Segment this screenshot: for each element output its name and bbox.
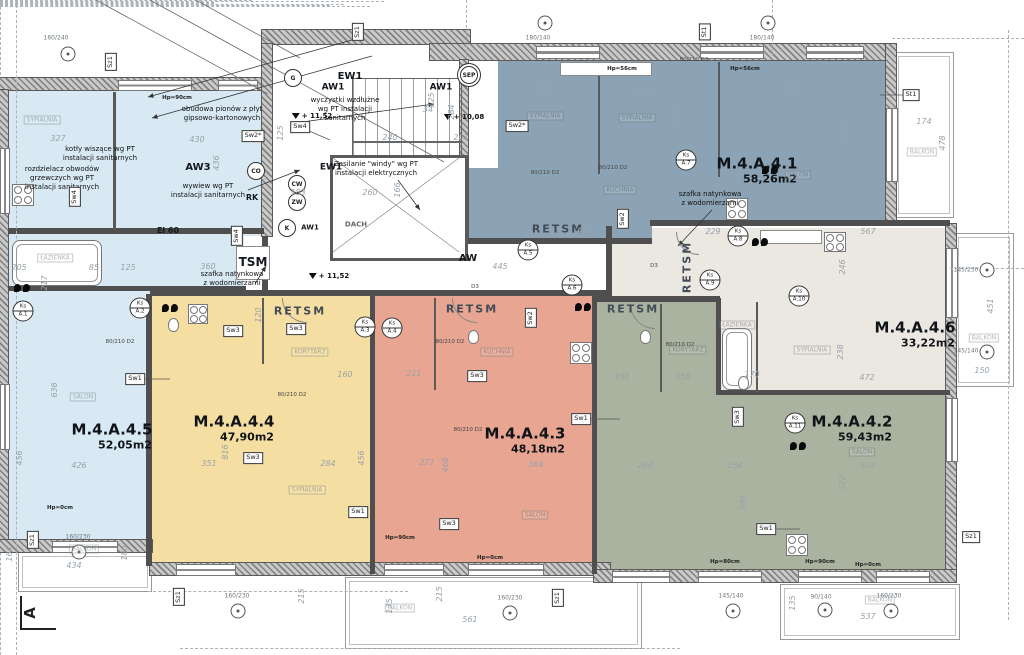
dimension: 470 <box>840 126 848 141</box>
apartment-region-m4a41 <box>468 168 498 238</box>
door-tag: 80/210 D2 <box>599 165 628 171</box>
label-aw1: AW1 <box>322 84 345 93</box>
dimension: 351 <box>201 460 216 468</box>
ks-number: A.5 <box>519 251 538 258</box>
dimension: 201 <box>453 134 468 142</box>
dimension: 339 <box>673 107 681 122</box>
tag-sw3: Sw3 <box>286 323 306 335</box>
section-marker-a: A <box>21 607 39 619</box>
apartment-label-m4a43: M.4.A.4.348,18m2 <box>485 425 566 455</box>
axis-line <box>466 0 467 58</box>
dimension: 150 <box>974 367 989 375</box>
wall <box>716 390 950 395</box>
dimension: 456 <box>16 450 24 465</box>
ks-number: A.10 <box>790 297 809 304</box>
label-aw: AW <box>459 254 477 264</box>
section-marker-line <box>20 596 22 630</box>
window-size: 160/230 <box>66 534 91 541</box>
apartment-area: 33,22m2 <box>875 336 956 349</box>
toilet-icon <box>168 318 179 332</box>
note-exhaust: wywiew wg PT instalacji sanitarnych <box>171 182 245 200</box>
tag-sw3: Sw3 <box>732 407 744 427</box>
apartment-code: M.4.A.4.6 <box>875 319 956 336</box>
room-label: SALON <box>849 448 875 457</box>
kitchen-counter <box>560 62 652 76</box>
window <box>0 148 10 214</box>
dimension: 238 <box>837 344 845 359</box>
label-retsm: RETSM <box>446 304 498 315</box>
dimension: 537 <box>860 613 875 621</box>
tag-sw4: Sw4 <box>231 226 243 246</box>
window-size: 145/230 <box>954 267 979 274</box>
room-label: KUCHNIA <box>480 348 513 357</box>
window <box>536 46 600 59</box>
dimension: 390 <box>740 495 748 510</box>
dimension: 816 <box>222 444 230 459</box>
dimension: 240 <box>382 134 397 142</box>
dimension: 166 <box>394 182 402 197</box>
note-boilers: kotły wiszące wg PT instalacji sanitarny… <box>63 145 137 163</box>
label-tsm: TSM <box>239 256 268 268</box>
axis-line <box>1008 30 1009 620</box>
window-size: 180/140 <box>526 35 551 42</box>
dimension: 260 <box>362 189 377 197</box>
sill-label: Hp=90cm <box>162 95 192 101</box>
marker-ks-a2: KsA.2 <box>130 298 151 319</box>
window <box>806 46 864 59</box>
room-label: KUCHNIA <box>603 186 636 195</box>
dimension: 125 <box>277 125 285 140</box>
dimension: 135 <box>789 595 797 610</box>
sill-label: Hp=56cm <box>730 66 760 72</box>
ks-number: A.4 <box>383 329 402 336</box>
apartment-code: M.4.A.4.5 <box>72 421 153 438</box>
dimension: 34 <box>423 106 433 114</box>
dimension: 160 <box>337 371 352 379</box>
stove-icon <box>824 232 846 252</box>
room-label: SYPIALNIA <box>527 112 564 121</box>
window-marker <box>818 603 833 618</box>
door-tag: D3 <box>471 284 479 290</box>
window-marker <box>61 47 76 62</box>
note-distributor: rozdzielacz obwodów grzewczych wg PT ins… <box>25 165 99 192</box>
door-tag: 80/210 D2 <box>680 57 709 63</box>
axis-line <box>148 591 408 592</box>
label-ew1: EW1 <box>320 164 342 173</box>
ks-prefix: Ks <box>14 304 33 312</box>
label-retsm: RETSM <box>682 241 693 293</box>
tag-sw4: Sw4 <box>290 121 310 133</box>
ks-number: A.3 <box>356 328 375 335</box>
ks-prefix: Ks <box>356 320 375 328</box>
window-size: 180/140 <box>750 35 775 42</box>
marker-co: CO <box>247 162 265 180</box>
section-marker-line <box>20 628 56 630</box>
window-marker <box>538 16 553 31</box>
marker-ks-a3: KsA.3 <box>355 317 376 338</box>
window-size: 90/140 <box>810 594 831 601</box>
marker-ks-a11: KsA.11 <box>785 413 806 434</box>
label-aw1: AW1 <box>430 84 453 93</box>
room-label: SYPIALNIA <box>24 116 61 125</box>
dimension: 125 <box>120 264 135 272</box>
dimension: 478 <box>939 135 947 150</box>
dimension: 254 <box>727 462 742 470</box>
label-aw3: AW3 <box>185 163 210 173</box>
apartment-area: 47,90m2 <box>194 430 275 443</box>
window <box>218 80 258 91</box>
window-size: 160/230 <box>225 593 250 600</box>
marker-g: G <box>284 69 302 87</box>
label-retsm: RETSM <box>532 224 584 235</box>
dimension: 451 <box>987 298 995 313</box>
tag-sw2s: Sw2* <box>506 120 529 132</box>
tag-sw3: Sw3 <box>223 325 243 337</box>
label-ew1: EW1 <box>338 72 363 82</box>
apartment-code: M.4.A.4.4 <box>194 413 275 430</box>
tag-sw4: Sw4 <box>69 187 81 207</box>
marker-ks-a1: KsA.1 <box>13 301 34 322</box>
label-el60: El 60 <box>157 227 179 235</box>
marker-ks-a5: KsA.5 <box>518 240 539 261</box>
apartment-code: M.4.A.4.3 <box>485 425 566 442</box>
door-tag: 80/210 D2 <box>454 427 483 433</box>
vent-symbol <box>162 304 178 312</box>
dimension: 426 <box>71 462 86 470</box>
window-marker <box>980 263 995 278</box>
wall <box>650 220 950 226</box>
marker-ks-a7: KsA.7 <box>676 150 697 171</box>
dimension: 456 <box>358 450 366 465</box>
door-tag: 80/210 D2 <box>106 339 135 345</box>
tag-sw3: Sw3 <box>467 370 487 382</box>
window <box>0 384 10 450</box>
room-label: BALKON <box>969 334 999 343</box>
note-shaft-casing: obudowa pionów z płyt gipsowo-kartonowyc… <box>182 105 263 123</box>
dimension: 430 <box>189 136 204 144</box>
apartment-area: 52,05m2 <box>72 438 153 451</box>
wall <box>592 294 597 574</box>
apartment-area: 59,43m2 <box>812 430 893 443</box>
room-label: KORYTARZ <box>291 348 328 357</box>
ks-prefix: Ks <box>383 321 402 329</box>
partition <box>598 62 600 174</box>
ks-number: A.1 <box>14 312 33 319</box>
ks-number: A.7 <box>677 161 696 168</box>
dimension: 215 <box>298 588 306 603</box>
wall <box>370 294 375 574</box>
window <box>798 571 862 583</box>
tag-sw3: Sw3 <box>243 452 263 464</box>
tag-sz1: Sz1 <box>27 531 39 549</box>
window <box>698 571 762 583</box>
window-size: 160/230 <box>498 595 523 602</box>
marker-k: K <box>278 219 296 237</box>
dimension: 246 <box>839 259 847 274</box>
tag-sw1: Sw1 <box>348 506 368 518</box>
window <box>946 248 958 318</box>
sill-label: Hp=0cm <box>477 555 503 561</box>
balcony-right-mid <box>954 233 1014 387</box>
dimension: 280 <box>537 84 552 92</box>
room-label: BALKON <box>69 545 99 554</box>
dimension: 170 <box>744 371 759 379</box>
dimension: 217 <box>41 275 49 290</box>
level-mark: + 11,52 <box>292 112 332 120</box>
dimension: 284 <box>448 104 456 119</box>
tag-st1: St1 <box>903 89 920 101</box>
kitchen-counter <box>760 230 822 244</box>
dimension: 567 <box>860 228 875 236</box>
door-tag: 80/210 D2 <box>531 170 560 176</box>
window <box>118 80 192 91</box>
tag-sw1: Sw1 <box>571 413 591 425</box>
tag-sz1: Sz1 <box>173 588 185 606</box>
dimension: 297 <box>636 87 651 95</box>
dimension: 436 <box>213 155 221 170</box>
dimension: 445 <box>492 263 507 271</box>
tag-sw2: Sw2 <box>617 209 629 229</box>
stove-icon <box>786 534 808 556</box>
label-rk: RK <box>246 194 258 202</box>
dimension: 215 <box>436 586 444 601</box>
window-size: 145/140 <box>954 348 979 355</box>
ks-prefix: Ks <box>786 416 805 424</box>
dimension: 229 <box>705 228 720 236</box>
floor-plan-drawing: M.4.A.4.158,26m2 M.4.A.4.259,43m2 M.4.A.… <box>0 0 1024 655</box>
tag-sw3: Sw3 <box>439 518 459 530</box>
dimension: 468 <box>442 457 450 472</box>
window-size: 160/240 <box>44 35 69 42</box>
dimension: 166 <box>614 373 629 381</box>
ks-prefix: Ks <box>790 289 809 297</box>
window-marker <box>726 604 741 619</box>
marker-ks-a9: KsA.9 <box>700 270 721 291</box>
level-mark: + 11,52 <box>309 272 349 280</box>
window <box>700 46 764 59</box>
tag-sz1: Sz1 <box>352 23 364 41</box>
window-marker <box>761 16 776 31</box>
dimension: 402 <box>577 227 592 235</box>
room-label: BALKON <box>865 596 895 605</box>
sill-label: Hp=90cm <box>385 535 415 541</box>
window-marker <box>980 345 995 360</box>
marker-ks-a4: KsA.4 <box>382 318 403 339</box>
wall <box>716 298 721 394</box>
balcony-left <box>18 552 152 592</box>
door-tag: D3 <box>650 263 658 269</box>
apartment-label-m4a46: M.4.A.4.633,22m2 <box>875 319 956 349</box>
dimension: 561 <box>462 616 477 624</box>
wall <box>594 296 720 302</box>
room-label: ŁAZIENKA <box>37 254 73 263</box>
sill-label: Hp=0cm <box>855 562 881 568</box>
stove-icon <box>188 304 208 324</box>
ks-prefix: Ks <box>729 229 748 237</box>
note-water-meters: szafka natynkowa z wodomierzami <box>679 190 742 208</box>
dimension: 205 <box>11 264 26 272</box>
window <box>612 571 670 583</box>
dimension: 472 <box>860 462 875 470</box>
vent-symbol <box>14 284 30 292</box>
label-retsm: RETSM <box>274 306 326 317</box>
apartment-label-m4a44: M.4.A.4.447,90m2 <box>194 413 275 443</box>
apartment-code: M.4.A.4.2 <box>812 413 893 430</box>
dimension: 472 <box>859 374 874 382</box>
window-marker <box>884 604 899 619</box>
ks-prefix: Ks <box>563 278 582 286</box>
ks-number: A.8 <box>729 237 748 244</box>
room-label: SYPIALNIA <box>794 346 831 355</box>
dimension: 284 <box>320 460 335 468</box>
door-tag: 80/210 D2 <box>436 339 465 345</box>
tag-sz1: Sz1 <box>105 53 117 71</box>
window-marker <box>231 604 246 619</box>
tag-sw1: Sw1 <box>125 373 145 385</box>
window <box>176 564 236 576</box>
apartment-area: 48,18m2 <box>485 442 566 455</box>
label-dach: DACH <box>345 222 367 229</box>
ks-prefix: Ks <box>701 273 720 281</box>
stove-icon <box>570 342 592 364</box>
dimension: 211 <box>406 370 421 378</box>
window <box>384 564 444 576</box>
tag-sz1: Sz1 <box>552 589 564 607</box>
dimension: 555 <box>782 87 797 95</box>
room-label: BALKON <box>907 148 937 157</box>
wall <box>8 228 264 234</box>
wall <box>262 30 470 44</box>
dimension: 120 <box>255 307 263 322</box>
room-label: SALON <box>522 511 548 520</box>
ks-number: A.9 <box>701 281 720 288</box>
apartment-region-m4a45 <box>8 294 148 540</box>
marker-ks-a10: KsA.10 <box>789 286 810 307</box>
vent-symbol <box>790 442 806 450</box>
room-label: SYPIALNIA <box>619 114 656 123</box>
tag-sz1: Sz1 <box>962 531 980 543</box>
dimension: 174 <box>916 118 931 126</box>
window <box>876 571 930 583</box>
apartment-code: M.4.A.4.1 <box>717 155 798 172</box>
wall <box>606 226 612 302</box>
dimension: 271 <box>419 459 434 467</box>
dimension: 183 <box>290 189 305 197</box>
door-tag: 80/210 D2 <box>278 392 307 398</box>
tag-sw2: Sw2 <box>525 308 537 328</box>
note-elevator-power: Zasilanie "windy" wg PT instalacji elekt… <box>334 160 418 178</box>
room-label: KORYTARZ <box>669 346 706 355</box>
marker-ks-a6: KsA.6 <box>562 275 583 296</box>
room-label: ŁAZIENKA <box>719 321 755 330</box>
dimension: 158 <box>675 373 690 381</box>
room-label: BALKON <box>385 604 415 613</box>
room-label: SYPIALNIA <box>289 486 326 495</box>
apartment-region-m4a42 <box>594 302 718 572</box>
note-water-meters: szafka natynkowa z wodomierzami <box>201 270 264 288</box>
vent-symbol <box>575 303 591 311</box>
vent-symbol <box>752 238 768 246</box>
axis-line <box>180 648 680 649</box>
partition <box>660 304 662 392</box>
ks-prefix: Ks <box>519 243 538 251</box>
window <box>946 398 958 462</box>
dimension: 264 <box>637 462 652 470</box>
toilet-icon <box>468 330 479 344</box>
ks-number: A.6 <box>563 286 582 293</box>
wall <box>438 238 652 244</box>
axis-line <box>892 38 1024 39</box>
dimension: 327 <box>50 135 65 143</box>
label-retsm: RETSM <box>607 304 659 315</box>
ks-prefix: Ks <box>677 153 696 161</box>
toilet-icon <box>640 330 651 344</box>
label-aw1: AW1 <box>301 225 319 232</box>
dimension: 636 <box>51 382 59 397</box>
tag-sw2s: Sw2* <box>242 130 265 142</box>
sill-label: Hp=80cm <box>710 559 740 565</box>
ks-number: A.11 <box>786 424 805 431</box>
window-size: 145/140 <box>719 593 744 600</box>
marker-sep: SEP <box>460 66 478 84</box>
apartment-label-m4a45: M.4.A.4.552,05m2 <box>72 421 153 451</box>
tag-st1: St1 <box>699 24 711 41</box>
dimension: 364 <box>528 461 543 469</box>
marker-ks-a8: KsA.8 <box>728 226 749 247</box>
window <box>886 108 898 182</box>
sill-label: Hp=0cm <box>47 505 73 511</box>
room-label: SALON <box>785 171 811 180</box>
dimension: 85 <box>89 264 99 272</box>
tag-sw1: Sw1 <box>756 523 776 535</box>
axis-line <box>16 0 17 655</box>
ks-number: A.2 <box>131 309 150 316</box>
sill-label: Hp=56cm <box>607 66 637 72</box>
dimension: 164 <box>6 546 14 561</box>
dimension: 180 <box>121 545 129 560</box>
dimension: 360 <box>200 263 215 271</box>
room-label: SALON <box>70 393 96 402</box>
apartment-label-m4a42: M.4.A.4.259,43m2 <box>812 413 893 443</box>
dimension: 522 <box>839 475 847 490</box>
window <box>468 564 544 576</box>
dimension: 434 <box>66 562 81 570</box>
window-marker <box>503 606 518 621</box>
ks-prefix: Ks <box>131 301 150 309</box>
sill-label: Hp=90cm <box>805 559 835 565</box>
